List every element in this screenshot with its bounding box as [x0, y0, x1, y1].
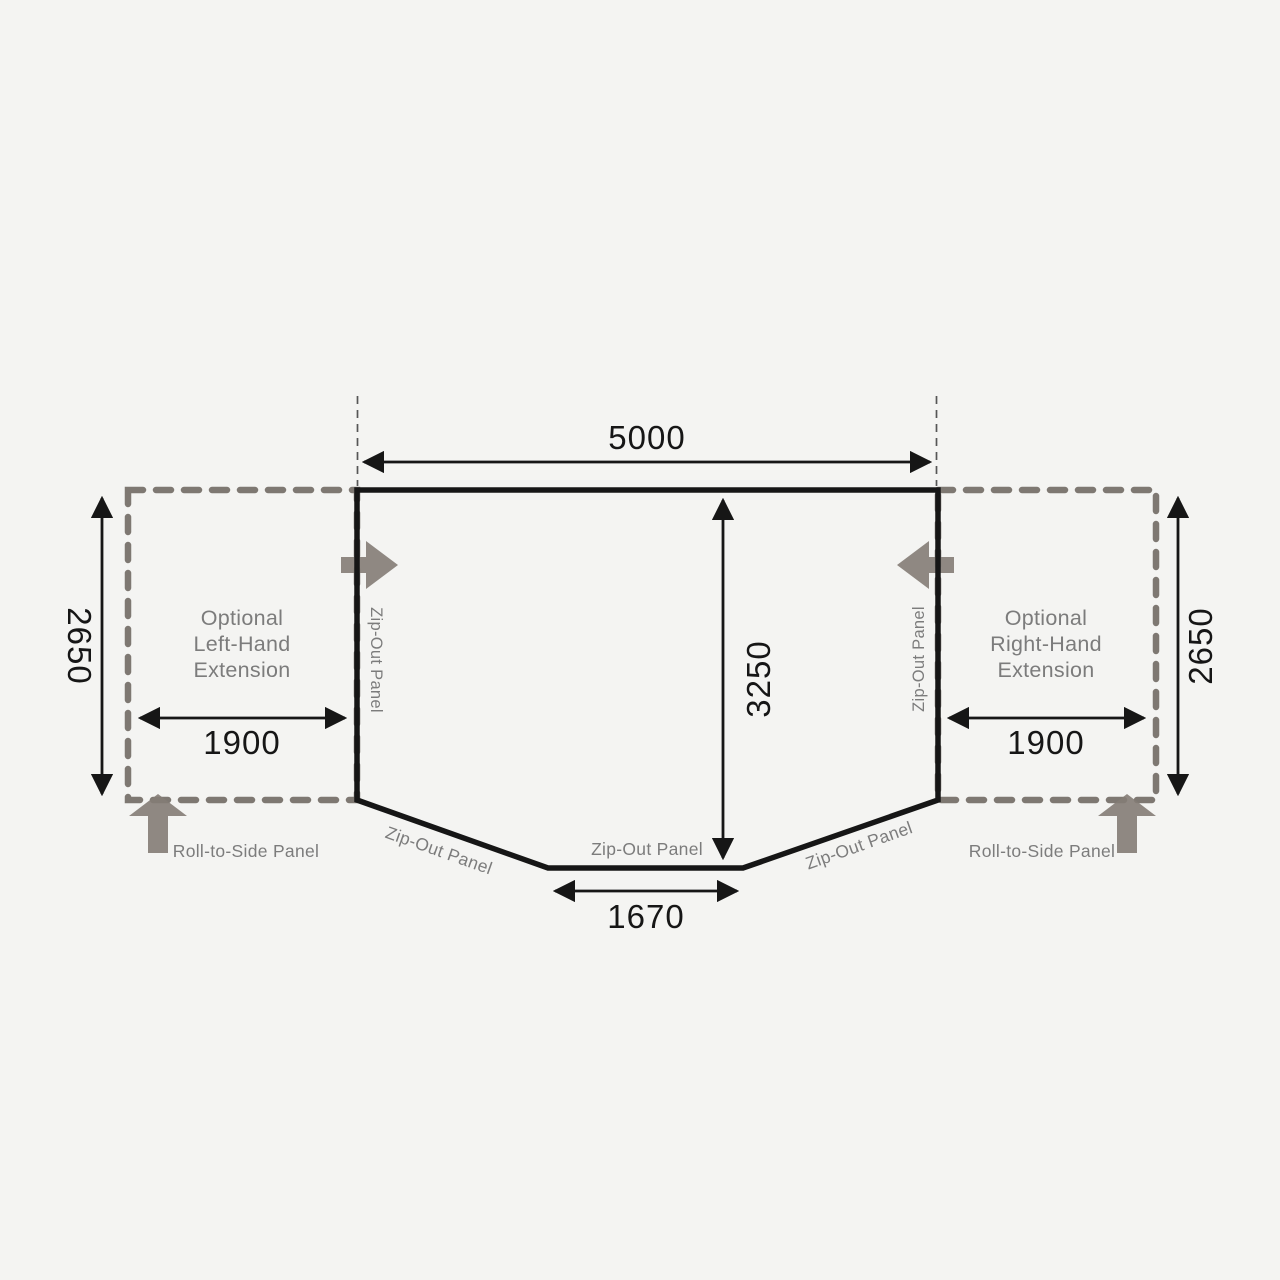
right-extension-caption-line1: Optional: [1005, 606, 1087, 630]
zip-out-panel-label-left-side: Zip-Out Panel: [367, 607, 385, 713]
left-extension-caption-line1: Optional: [201, 606, 283, 630]
zip-out-panel-label-right-side: Zip-Out Panel: [910, 606, 928, 712]
zip-out-panel-label-front-center: Zip-Out Panel: [591, 839, 703, 859]
dimension-label-right-extension-depth: 2650: [1182, 607, 1219, 684]
left-extension-caption-line3: Extension: [193, 658, 290, 682]
left-extension-caption-line2: Left-Hand: [193, 632, 290, 656]
dimension-label-front-width: 1670: [607, 898, 684, 935]
roll-to-side-panel-label-right: Roll-to-Side Panel: [969, 841, 1115, 861]
awning-main-outline: [357, 490, 938, 868]
diagram-canvas: 5000 3250 1670 1900 1900 2650 2650 Optio…: [0, 0, 1280, 1280]
roll-to-side-panel-label-left: Roll-to-Side Panel: [173, 841, 319, 861]
zip-out-direction-arrow-right-icon: [897, 541, 954, 589]
awning-floorplan-diagram: 5000 3250 1670 1900 1900 2650 2650 Optio…: [0, 0, 1280, 1280]
right-extension-caption-line3: Extension: [997, 658, 1094, 682]
zip-out-direction-arrow-left-icon: [341, 541, 398, 589]
dimension-label-right-extension-width: 1900: [1007, 724, 1084, 761]
dimension-label-depth: 3250: [740, 640, 777, 717]
dimension-label-left-extension-depth: 2650: [61, 607, 98, 684]
dimension-label-total-width: 5000: [608, 419, 685, 456]
right-extension-caption-line2: Right-Hand: [990, 632, 1102, 656]
dimension-label-left-extension-width: 1900: [203, 724, 280, 761]
